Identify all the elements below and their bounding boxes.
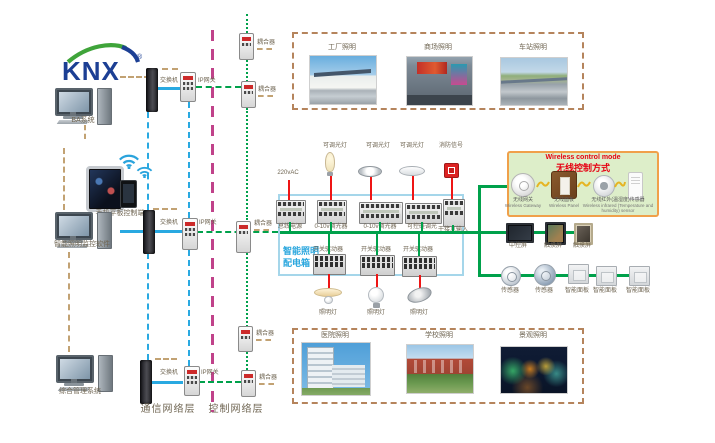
tan-link	[256, 339, 271, 341]
ethernet-line	[120, 230, 143, 233]
dimmable-lamp-label: 可调光灯	[400, 143, 424, 149]
pc-tower	[98, 355, 113, 392]
lamp-label: 照明灯	[319, 310, 337, 316]
wireless-signal-icon	[614, 178, 626, 190]
lamp-label: 照明灯	[367, 310, 385, 316]
ethernet-line	[188, 250, 190, 366]
photo-label-school: 学校照明	[425, 332, 453, 339]
wireless-sensor-label-en2: humidity) sensor	[601, 209, 634, 214]
line-coupler	[238, 326, 253, 352]
ip-gateway	[180, 72, 196, 102]
coupler-label: 耦合器	[254, 221, 272, 227]
knx-branch-line	[478, 274, 501, 277]
wireless-gateway-icon	[511, 173, 535, 197]
wireless-wall-sensor-icon	[628, 172, 643, 200]
touch-screen-icon	[545, 222, 566, 245]
dish-lamp-icon	[405, 284, 433, 305]
knx-system-diagram: KNX ® BA系统 手机平板控制端	[0, 0, 715, 443]
ethernet-line	[157, 87, 180, 90]
ip-gateway	[182, 218, 198, 250]
ceiling-lamp-icon	[399, 166, 425, 176]
coupler-label: 耦合器	[257, 40, 275, 46]
bus-power-module	[276, 200, 306, 224]
knx-stub	[328, 234, 330, 254]
dimmer-module-2	[359, 202, 403, 224]
line-coupler	[241, 370, 256, 397]
tan-link	[257, 48, 272, 50]
mobile-control-devices	[84, 152, 166, 212]
knx-logo: KNX ®	[60, 40, 150, 88]
photo-station-lighting	[500, 57, 568, 106]
ip-gateway	[184, 366, 200, 396]
gateway-label: IP网关	[198, 78, 216, 84]
tan-link	[63, 148, 65, 210]
wireless-signal-icon	[536, 178, 550, 190]
monitor-screen	[59, 216, 89, 236]
knx-branch-line	[615, 274, 629, 277]
smart-panel-icon	[568, 264, 589, 284]
photo-school-lighting	[406, 344, 474, 394]
smart-panel-label: 智能面板	[593, 288, 617, 294]
panel-name-line2: 配电箱	[283, 258, 310, 270]
photo-factory-lighting	[309, 55, 377, 105]
network-switch	[146, 68, 158, 112]
photo-landscape-lighting	[500, 346, 568, 394]
smartphone	[120, 180, 137, 208]
gateway-label: IP网关	[199, 220, 217, 226]
ctrl-layer-label: 控制网络层	[209, 400, 264, 415]
load-line	[376, 274, 378, 287]
switch-label: 交换机	[160, 78, 178, 84]
sensor-label: 传感器	[501, 288, 519, 294]
power-input-label: 220vAC	[277, 170, 298, 176]
gateway-label: IP网关	[201, 370, 219, 376]
tablet	[86, 166, 124, 212]
candle-lamp-icon	[325, 152, 335, 172]
photo-label-station: 车站照明	[519, 44, 547, 51]
dimmable-lamp-label: 可调光灯	[323, 143, 347, 149]
knx-logo-text: KNX	[62, 56, 120, 87]
knx-bus-line	[246, 108, 248, 220]
lighting-monitor-label: 智能照明监控软件	[54, 241, 110, 248]
load-line	[328, 274, 330, 288]
ethernet-line	[147, 112, 149, 210]
knx-branch-line	[519, 274, 534, 277]
registered-mark-icon: ®	[137, 54, 142, 61]
knx-bus-line	[246, 14, 248, 33]
photo-label-mall: 商场照明	[424, 44, 452, 51]
load-line	[412, 176, 414, 200]
management-label: 综合管理系统	[59, 388, 101, 395]
network-switch	[143, 210, 155, 254]
wifi-icon	[136, 165, 153, 178]
touch-screen-label: 触摸屏	[573, 243, 591, 249]
knx-bus-line	[199, 381, 241, 383]
dry-contact-module	[443, 199, 465, 227]
knx-branch-line	[554, 274, 568, 277]
power-line	[288, 180, 290, 200]
knx-main-bus	[464, 231, 506, 234]
smart-panel-label: 智能面板	[565, 288, 589, 294]
pc-tower	[97, 88, 112, 125]
line-coupler	[241, 81, 256, 108]
dimmable-lamp-label: 可调光灯	[366, 143, 390, 149]
ethernet-line	[188, 102, 190, 218]
ethernet-line	[147, 253, 149, 360]
sensor-label: 传感器	[535, 288, 553, 294]
tan-link	[84, 125, 86, 139]
tan-link	[68, 252, 70, 352]
sensor-icon	[501, 266, 521, 286]
switch-actuator-module	[313, 254, 346, 275]
central-screen-label: 中控屏	[509, 243, 527, 249]
load-line	[419, 275, 421, 288]
wireless-panel-label-en: Wireless Panel	[549, 204, 579, 209]
knx-bus-line	[196, 86, 241, 88]
knx-branch-line	[478, 185, 481, 275]
tan-link	[259, 383, 274, 385]
switch-actuator-module	[360, 255, 395, 276]
smart-panel-icon	[629, 266, 650, 286]
photo-label-landscape: 景观照明	[519, 332, 547, 339]
load-line	[370, 177, 372, 200]
coupler-label: 耦合器	[258, 87, 276, 93]
ethernet-line	[150, 381, 183, 384]
comm-layer-label: 通信网络层	[141, 400, 196, 415]
knx-main-bus	[280, 231, 464, 234]
knx-stub	[376, 234, 378, 255]
load-line	[330, 176, 332, 200]
touch-screen-label: 触摸屏	[544, 243, 562, 249]
smart-panel-icon	[596, 266, 617, 286]
wireless-panel-icon	[551, 171, 577, 199]
wireless-infrared-sensor-icon	[593, 175, 615, 197]
knx-bus-line	[246, 253, 248, 327]
ba-system-label: BA系统	[71, 117, 94, 124]
photo-label-factory: 工厂照明	[328, 44, 356, 51]
fire-signal-label: 消防信号	[439, 143, 463, 149]
wireless-title-en: Wireless control mode	[545, 154, 620, 161]
knx-stub	[418, 234, 420, 256]
load-line	[451, 178, 453, 200]
knx-bus-line	[246, 60, 248, 82]
central-screen-icon	[506, 223, 534, 243]
coupler-label: 耦合器	[259, 375, 277, 381]
switch-label: 交换机	[160, 370, 178, 376]
monitor-screen	[60, 359, 90, 379]
dimmer-module-1	[317, 200, 347, 224]
wireless-signal-icon	[577, 178, 591, 190]
thyristor-dimmer-module	[405, 203, 442, 224]
tan-link	[258, 95, 273, 97]
network-switch	[140, 360, 152, 404]
photo-label-hospital: 医院照明	[321, 332, 349, 339]
smart-panel-label: 智能面板	[626, 288, 650, 294]
photo-hospital-lighting	[301, 342, 371, 396]
tan-link	[155, 358, 177, 360]
monitor-screen	[59, 92, 89, 112]
touch-screen-icon	[574, 223, 593, 245]
coupler-label: 耦合器	[256, 331, 274, 337]
tan-link	[162, 68, 178, 70]
phone-screen	[123, 184, 134, 203]
switch-label: 交换机	[160, 220, 178, 226]
line-coupler	[239, 33, 254, 60]
wireless-gateway-label-en: Wireless Gateway	[505, 204, 541, 209]
switch-actuator-module	[402, 256, 437, 277]
ethernet-line	[152, 230, 182, 233]
tablet-screen	[90, 170, 120, 208]
lamp-label: 照明灯	[410, 310, 428, 316]
fire-alarm-icon	[444, 163, 459, 178]
photo-mall-lighting	[406, 56, 473, 106]
bulb-lamp-icon	[368, 287, 384, 303]
downlight-icon	[358, 166, 382, 177]
sensor-icon	[534, 264, 556, 286]
line-coupler	[236, 221, 251, 253]
